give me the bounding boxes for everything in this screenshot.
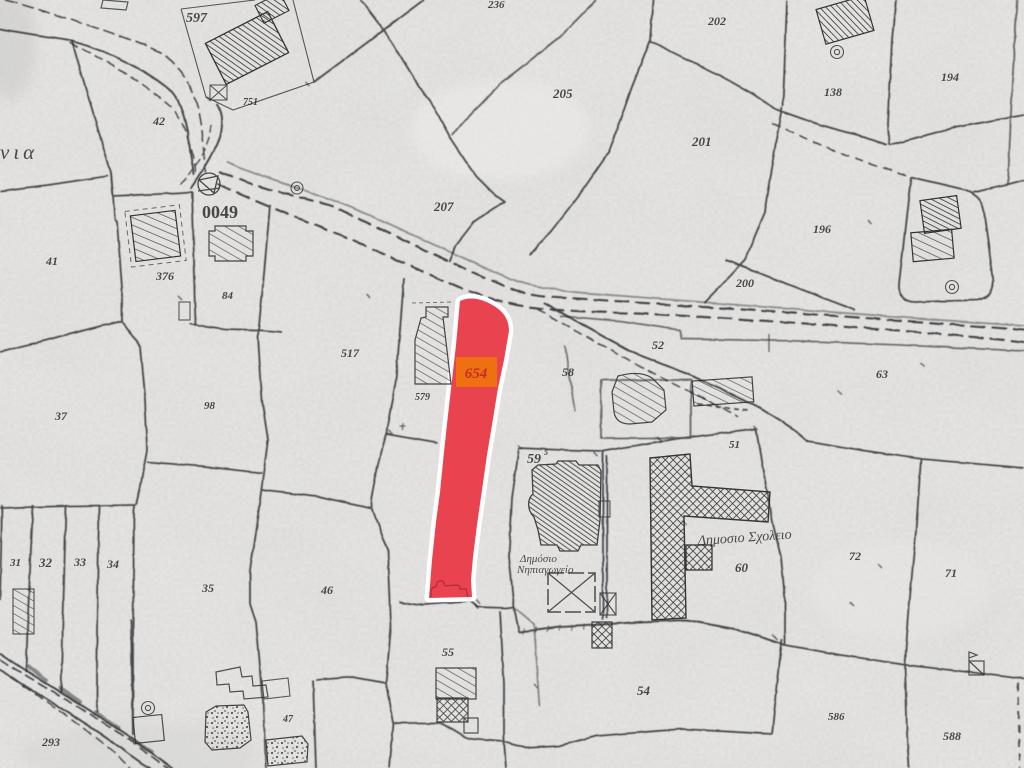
svg-text:236: 236: [487, 0, 505, 11]
svg-text:37: 37: [54, 409, 68, 423]
svg-text:νια: νια: [0, 140, 38, 164]
svg-text:517: 517: [341, 346, 360, 360]
svg-text:597: 597: [186, 11, 208, 26]
svg-text:33: 33: [73, 555, 86, 569]
svg-text:200: 200: [735, 276, 754, 290]
svg-text:376: 376: [155, 269, 174, 283]
svg-text:84: 84: [222, 290, 234, 302]
svg-text:51: 51: [729, 439, 740, 451]
svg-text:138: 138: [824, 85, 842, 99]
svg-text:202: 202: [707, 14, 726, 28]
svg-text:47: 47: [282, 714, 294, 725]
svg-text:205: 205: [552, 86, 573, 101]
svg-text:579: 579: [415, 392, 430, 403]
svg-text:46: 46: [320, 583, 333, 597]
svg-text:196: 196: [813, 222, 831, 236]
svg-text:98: 98: [204, 400, 216, 412]
svg-text:Νηπιαγωγείο: Νηπιαγωγείο: [516, 564, 574, 576]
svg-text:751: 751: [243, 97, 258, 108]
svg-text:72: 72: [849, 549, 861, 563]
svg-text:586: 586: [828, 711, 845, 723]
svg-text:63: 63: [876, 367, 888, 381]
svg-text:588: 588: [943, 729, 961, 743]
svg-text:52: 52: [652, 338, 664, 352]
svg-text:5: 5: [544, 448, 548, 457]
svg-text:59: 59: [527, 452, 541, 467]
svg-text:201: 201: [691, 134, 712, 149]
svg-text:54: 54: [637, 683, 651, 698]
svg-text:71: 71: [945, 566, 957, 580]
svg-text:31: 31: [9, 557, 21, 569]
svg-text:60: 60: [735, 560, 749, 575]
svg-text:654: 654: [465, 366, 488, 382]
svg-text:41: 41: [45, 254, 58, 268]
svg-text:0049: 0049: [202, 202, 238, 222]
svg-text:55: 55: [442, 645, 454, 659]
svg-text:194: 194: [941, 70, 959, 84]
svg-text:42: 42: [152, 114, 165, 128]
svg-text:58: 58: [562, 365, 574, 379]
svg-text:207: 207: [433, 199, 454, 214]
svg-text:35: 35: [201, 581, 214, 595]
svg-text:293: 293: [41, 735, 60, 749]
svg-text:32: 32: [38, 555, 53, 570]
svg-text:34: 34: [106, 557, 119, 571]
